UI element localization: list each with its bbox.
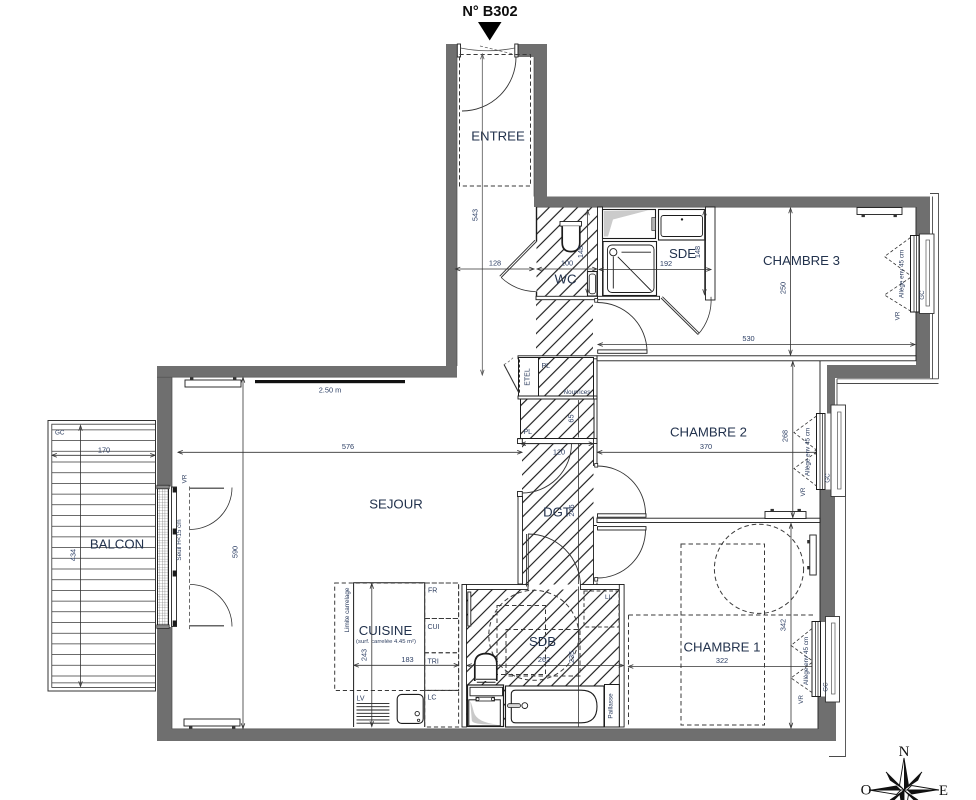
svg-text:ENTREE: ENTREE [471,129,525,144]
svg-text:CHAMBRE 3: CHAMBRE 3 [763,253,840,268]
svg-text:GC: GC [825,473,832,483]
svg-text:VR: VR [182,474,189,483]
svg-text:SEJOUR: SEJOUR [369,497,423,512]
svg-text:WC: WC [555,272,577,287]
svg-text:170: 170 [98,446,110,455]
svg-text:CUISINE: CUISINE [359,623,413,638]
svg-text:Allège env 45 cm: Allège env 45 cm [803,637,810,685]
svg-text:PL: PL [524,429,533,436]
svg-text:530: 530 [742,334,754,343]
svg-text:LC: LC [428,695,437,702]
svg-text:LV: LV [357,696,365,703]
svg-text:Allège env 45 cm: Allège env 45 cm [805,428,812,476]
svg-text:2.50 m: 2.50 m [319,386,342,395]
svg-text:Seuil H<15 cm: Seuil H<15 cm [176,519,183,560]
svg-text:246: 246 [567,504,576,516]
svg-text:148: 148 [576,246,585,258]
svg-text:N: N [899,744,910,760]
svg-text:(surf. carrelée 4.45 m²): (surf. carrelée 4.45 m²) [356,639,416,645]
svg-text:GC: GC [919,290,926,300]
svg-text:250: 250 [779,282,788,294]
svg-text:434: 434 [69,549,78,561]
svg-text:GC: GC [823,682,830,692]
svg-text:LL: LL [605,594,613,601]
svg-text:Allège env 45 cm: Allège env 45 cm [899,250,906,298]
svg-text:VR: VR [895,311,902,320]
svg-text:GC: GC [55,430,65,437]
svg-text:FR: FR [428,588,437,595]
svg-text:268: 268 [781,430,790,442]
svg-text:576: 576 [342,442,354,451]
svg-text:100: 100 [561,259,573,268]
svg-text:CHAMBRE 1: CHAMBRE 1 [684,640,761,655]
svg-text:192: 192 [660,259,672,268]
svg-text:VR: VR [800,487,807,496]
svg-text:262: 262 [538,655,550,664]
svg-text:235: 235 [567,651,576,663]
svg-text:E: E [939,783,948,799]
svg-text:128: 128 [489,259,501,268]
svg-text:Limite carrelage: Limite carrelage [344,587,351,632]
svg-text:183: 183 [401,655,413,664]
svg-text:590: 590 [231,546,240,558]
svg-text:342: 342 [779,619,788,631]
svg-text:VR: VR [798,695,805,704]
svg-text:CUI: CUI [428,624,440,631]
svg-text:148: 148 [693,246,702,258]
svg-text:ETEL: ETEL [525,368,532,386]
svg-text:SDB: SDB [529,634,556,649]
svg-text:BALCON: BALCON [90,537,144,552]
svg-text:120: 120 [553,448,565,457]
svg-text:370: 370 [700,442,712,451]
svg-text:Paillasse: Paillasse [608,693,615,719]
svg-text:243: 243 [360,649,369,661]
svg-text:O: O [861,783,872,799]
svg-text:543: 543 [471,209,480,221]
svg-text:PL: PL [542,363,551,370]
svg-text:322: 322 [716,656,728,665]
svg-text:TRI: TRI [428,659,439,666]
svg-text:65: 65 [567,414,576,422]
svg-text:Nourrices: Nourrices [564,389,591,396]
svg-text:CHAMBRE 2: CHAMBRE 2 [670,425,747,440]
svg-text:N° B302: N° B302 [462,4,517,20]
